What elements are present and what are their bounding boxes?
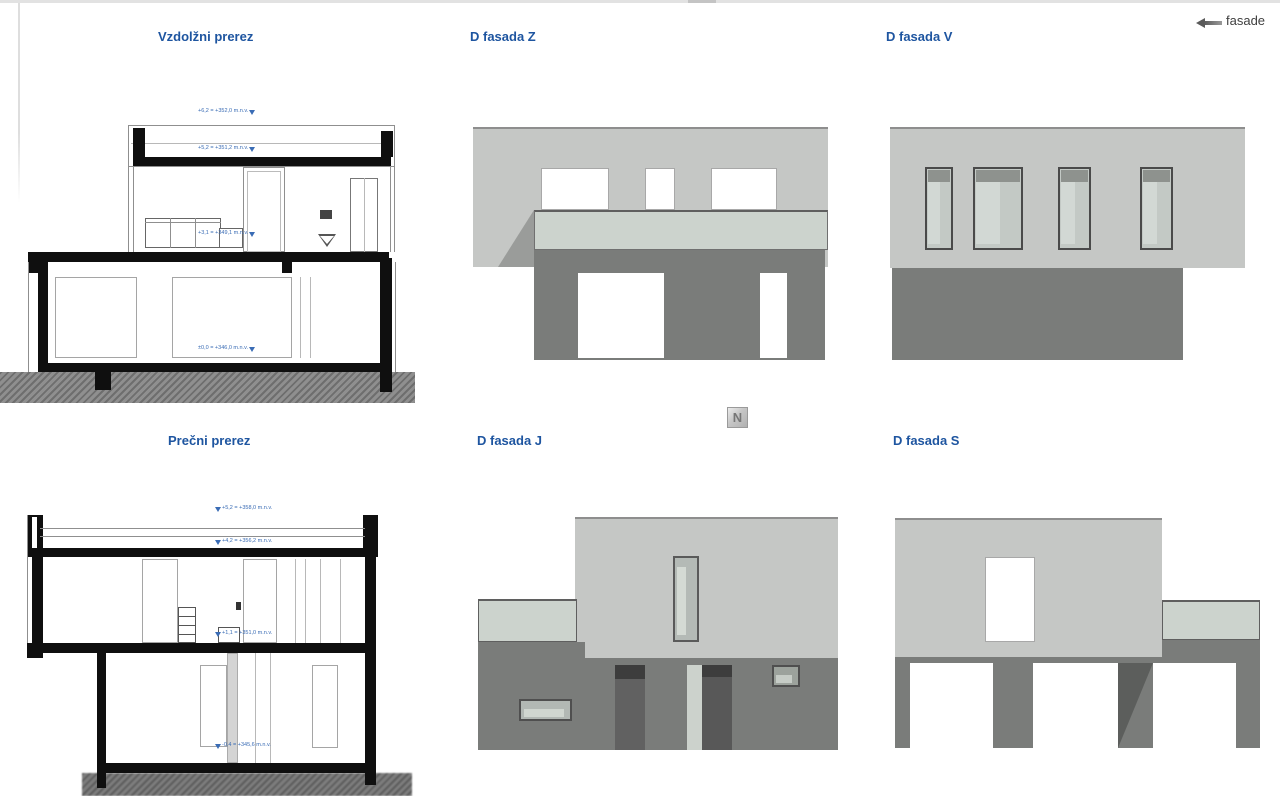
wall-line — [27, 515, 28, 658]
lower-volume — [892, 268, 1183, 360]
window-opening — [645, 168, 675, 210]
bottom-slab — [97, 763, 375, 773]
shelf-rung — [178, 616, 196, 617]
roof-post-right — [381, 131, 393, 157]
elevation-arrow-icon — [249, 347, 255, 352]
window-pane — [928, 182, 940, 244]
door-head — [702, 665, 732, 677]
elevation-annotation: +5,2 = +351,2 m.n.v. — [198, 145, 255, 152]
cabinet-divider — [170, 218, 171, 248]
window-opening — [711, 168, 777, 210]
page-top-border — [0, 0, 1280, 3]
interior-opening — [55, 277, 137, 358]
wall-line — [310, 277, 311, 358]
wall-left — [32, 548, 43, 657]
wall-stub — [282, 262, 292, 273]
north-letter: N — [733, 410, 742, 425]
roof-slab — [133, 157, 391, 166]
window-opening — [541, 168, 609, 210]
wall-line — [128, 167, 129, 252]
roof-post-left — [133, 128, 145, 157]
window-head-shadow — [1143, 170, 1170, 182]
elevation-annotation: +6,2 = +352,0 m.n.v. — [198, 108, 255, 115]
pier-opening — [910, 663, 993, 748]
roof-line — [40, 536, 365, 537]
cabinet-counter-line — [145, 222, 221, 223]
tall-cabinet-divider — [364, 178, 365, 252]
foundation-stub — [365, 773, 376, 785]
window-head-shadow — [1061, 170, 1088, 182]
elevation-arrow-icon — [215, 632, 221, 637]
column — [97, 653, 106, 763]
balcony-band — [478, 599, 577, 642]
door-head — [615, 665, 645, 679]
panel-longitudinal-section: +6,2 = +352,0 m.n.v. +5,2 = +351,2 m.n.v… — [0, 100, 430, 406]
door-glass-strip — [687, 665, 702, 750]
wall-line — [340, 559, 341, 643]
title-longitudinal-section: Vzdolžni prerez — [158, 29, 253, 44]
elevation-arrow-icon — [215, 744, 221, 749]
elevation-arrow-icon — [215, 540, 221, 545]
panel-cross-section: +5,2 = +358,0 m.n.v. +4,2 = +356,2 m.n.v… — [20, 490, 430, 796]
roof-line — [40, 528, 365, 529]
foundation-stub — [97, 773, 106, 788]
door-opening — [760, 273, 787, 358]
interior-door — [142, 559, 178, 643]
window-head-shadow — [976, 170, 1020, 182]
cabinet-divider — [195, 218, 196, 248]
wall-line — [133, 167, 134, 252]
elevation-annotation: +5,2 = +358,0 m.n.v. — [215, 505, 272, 512]
door — [702, 665, 732, 750]
foundation-stub — [95, 372, 111, 390]
interior-door-leaf — [247, 171, 281, 252]
interior-opening — [312, 665, 338, 748]
column — [38, 262, 48, 370]
elevation-annotation: +1,1 = +351,0 m.n.v. — [215, 630, 272, 637]
elevation-arrow-icon — [249, 110, 255, 115]
wall-fixture — [236, 602, 241, 610]
window-head-shadow — [928, 170, 950, 182]
wall-line — [305, 559, 306, 643]
title-facade-j: D fasada J — [477, 433, 542, 448]
wall-line — [390, 167, 391, 252]
floor-slab-cap — [27, 643, 43, 658]
balcony-band — [534, 210, 828, 250]
ground-hatch — [82, 773, 412, 796]
lower-volume-left — [478, 642, 585, 750]
elevation-arrow-icon — [249, 147, 255, 152]
panel-facade-s — [895, 518, 1261, 750]
upper-volume — [575, 517, 838, 658]
funnel-symbol-inner — [320, 236, 334, 244]
north-indicator-icon: N — [727, 407, 748, 428]
title-facade-z: D fasada Z — [470, 29, 536, 44]
roof-slab — [40, 548, 373, 557]
window-opening — [985, 557, 1035, 642]
title-facade-v: D fasada V — [886, 29, 952, 44]
window-pane — [1143, 182, 1157, 244]
window-pane — [524, 709, 564, 717]
corner-label: fasade — [1226, 13, 1265, 28]
title-facade-s: D fasada S — [893, 433, 959, 448]
ground-hatch — [0, 372, 415, 403]
panel-facade-z — [473, 127, 829, 363]
tall-window-pane — [677, 567, 686, 635]
wall-fixture — [320, 210, 332, 219]
pier-opening — [1153, 663, 1236, 748]
window-pane — [976, 182, 1000, 244]
panel-facade-v — [890, 127, 1250, 362]
elevation-annotation: +4,2 = +356,2 m.n.v. — [215, 538, 272, 545]
door-opening — [578, 273, 664, 358]
back-arrow-shaft — [1204, 21, 1222, 25]
elevation-annotation: +3,1 = +349,1 m.n.v. — [198, 230, 255, 237]
elevation-arrow-icon — [215, 507, 221, 512]
panel-facade-j — [478, 517, 840, 752]
wall-line — [295, 559, 296, 643]
bottom-slab — [38, 363, 392, 372]
floor-slab — [27, 643, 375, 653]
shelf-rung — [178, 625, 196, 626]
column — [365, 515, 376, 773]
elevation-arrow-icon — [249, 232, 255, 237]
wall-line — [320, 559, 321, 643]
balcony-band — [1162, 600, 1260, 640]
elevation-annotation: -0,4 = +345,6 m.n.v. — [215, 742, 271, 749]
title-cross-section: Prečni prerez — [168, 433, 250, 448]
pier-opening — [1033, 663, 1118, 748]
window-pane — [776, 675, 792, 683]
wall-line — [395, 262, 396, 372]
interior-opening — [200, 665, 227, 747]
wall-line — [28, 262, 29, 372]
elevation-annotation: ±0,0 = +346,0 m.n.v. — [198, 345, 255, 352]
roof-line — [131, 143, 392, 144]
window-pane — [1061, 182, 1075, 244]
shelf-rung — [178, 634, 196, 635]
wall-line — [300, 277, 301, 358]
floor-slab — [28, 252, 389, 262]
page-top-tick — [688, 0, 716, 3]
wall-line — [394, 167, 395, 252]
